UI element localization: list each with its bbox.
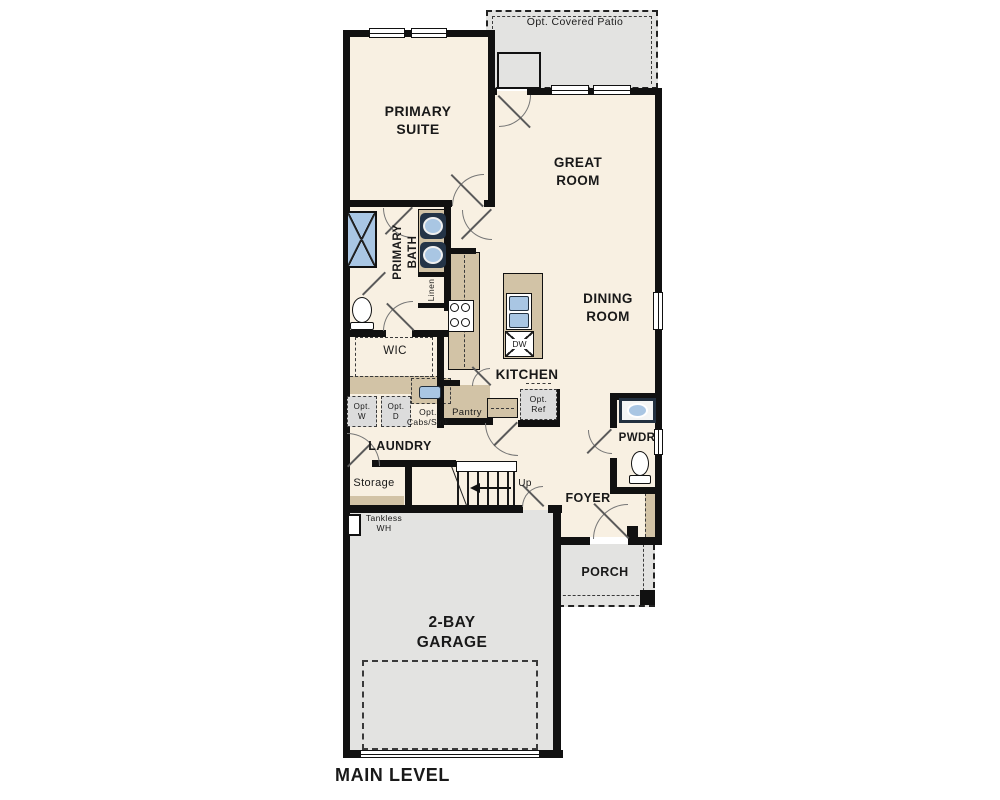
opt-washer-box: Opt. W	[347, 396, 377, 427]
up-label: Up	[513, 477, 537, 490]
burner-icon	[450, 303, 459, 312]
wall-segment	[628, 537, 662, 545]
counter-dash-line	[491, 408, 514, 409]
plan-title: MAIN LEVEL	[335, 764, 495, 788]
window	[411, 28, 447, 38]
garage-door	[360, 750, 540, 758]
stair-direction-line	[479, 487, 511, 489]
shower	[346, 211, 377, 268]
porch-label: PORCH	[575, 565, 635, 580]
wall-segment	[488, 30, 495, 207]
wall-segment	[488, 88, 497, 95]
garage-label: 2-BAY GARAGE	[390, 612, 514, 654]
great-room-label: GREAT ROOM	[538, 152, 618, 192]
wall-segment	[610, 393, 617, 428]
burner-icon	[450, 318, 459, 327]
hall-counter	[487, 398, 518, 418]
stair-landing	[456, 461, 517, 472]
porch-inner-dash-v	[643, 544, 644, 596]
window	[551, 85, 589, 95]
primary-suite-label: PRIMARY SUITE	[370, 100, 466, 140]
laundry-label: LAUNDRY	[356, 439, 444, 454]
dishwasher: DW	[505, 331, 534, 357]
toilet-icon	[631, 451, 649, 476]
wall-segment	[553, 537, 590, 545]
linen-label: Linen	[424, 274, 440, 306]
burner-icon	[461, 303, 470, 312]
primary-bath-label: PRIMARY BATH	[387, 220, 425, 284]
wic-label: WIC	[372, 344, 418, 358]
tankless-water-heater	[347, 514, 361, 536]
toilet-icon	[352, 297, 372, 323]
opt-cabs-sink-label: Opt. Cabs/Sink	[395, 406, 461, 428]
wall-segment	[484, 200, 495, 207]
wall-segment	[444, 380, 460, 386]
sink-icon	[423, 217, 443, 235]
burner-icon	[461, 318, 470, 327]
pwdr-label: PWDR	[614, 431, 660, 445]
dishwasher-label: DW	[511, 339, 527, 349]
stair-arrow-head	[470, 483, 480, 493]
sink-icon	[423, 246, 443, 264]
sink-icon	[627, 403, 648, 418]
sink-basin	[509, 296, 529, 311]
garage-parking-outline	[362, 660, 538, 750]
wall-segment	[444, 248, 476, 254]
window	[593, 85, 631, 95]
toilet-tank	[629, 475, 651, 484]
opt-fridge-box: Opt. Ref	[520, 389, 557, 420]
dining-room-label: DINING ROOM	[568, 288, 648, 328]
patio-step	[497, 52, 541, 89]
storage-label: Storage	[350, 476, 398, 490]
opt-ref-dash-mark	[526, 383, 551, 387]
wall-segment	[343, 30, 350, 757]
window	[653, 292, 663, 330]
porch-post	[640, 590, 655, 605]
foyer-label: FOYER	[558, 491, 618, 506]
kitchen-label: KITCHEN	[485, 367, 569, 382]
patio-label: Opt. Covered Patio	[508, 16, 642, 30]
porch-inner-dash-h	[558, 595, 644, 596]
window	[369, 28, 405, 38]
toilet-tank	[350, 322, 374, 330]
closet-door-stub	[627, 526, 638, 537]
floor-plan: DW Opt. W Opt. D Opt. Ref Opt. Covered P…	[0, 0, 1000, 800]
wall-segment	[343, 330, 386, 337]
tankless-wh-label: Tankless WH	[360, 512, 408, 534]
laundry-sink	[419, 386, 441, 399]
wall-segment	[343, 200, 452, 207]
sink-basin	[509, 313, 529, 328]
wall-segment	[372, 460, 456, 467]
wall-segment	[405, 460, 412, 510]
